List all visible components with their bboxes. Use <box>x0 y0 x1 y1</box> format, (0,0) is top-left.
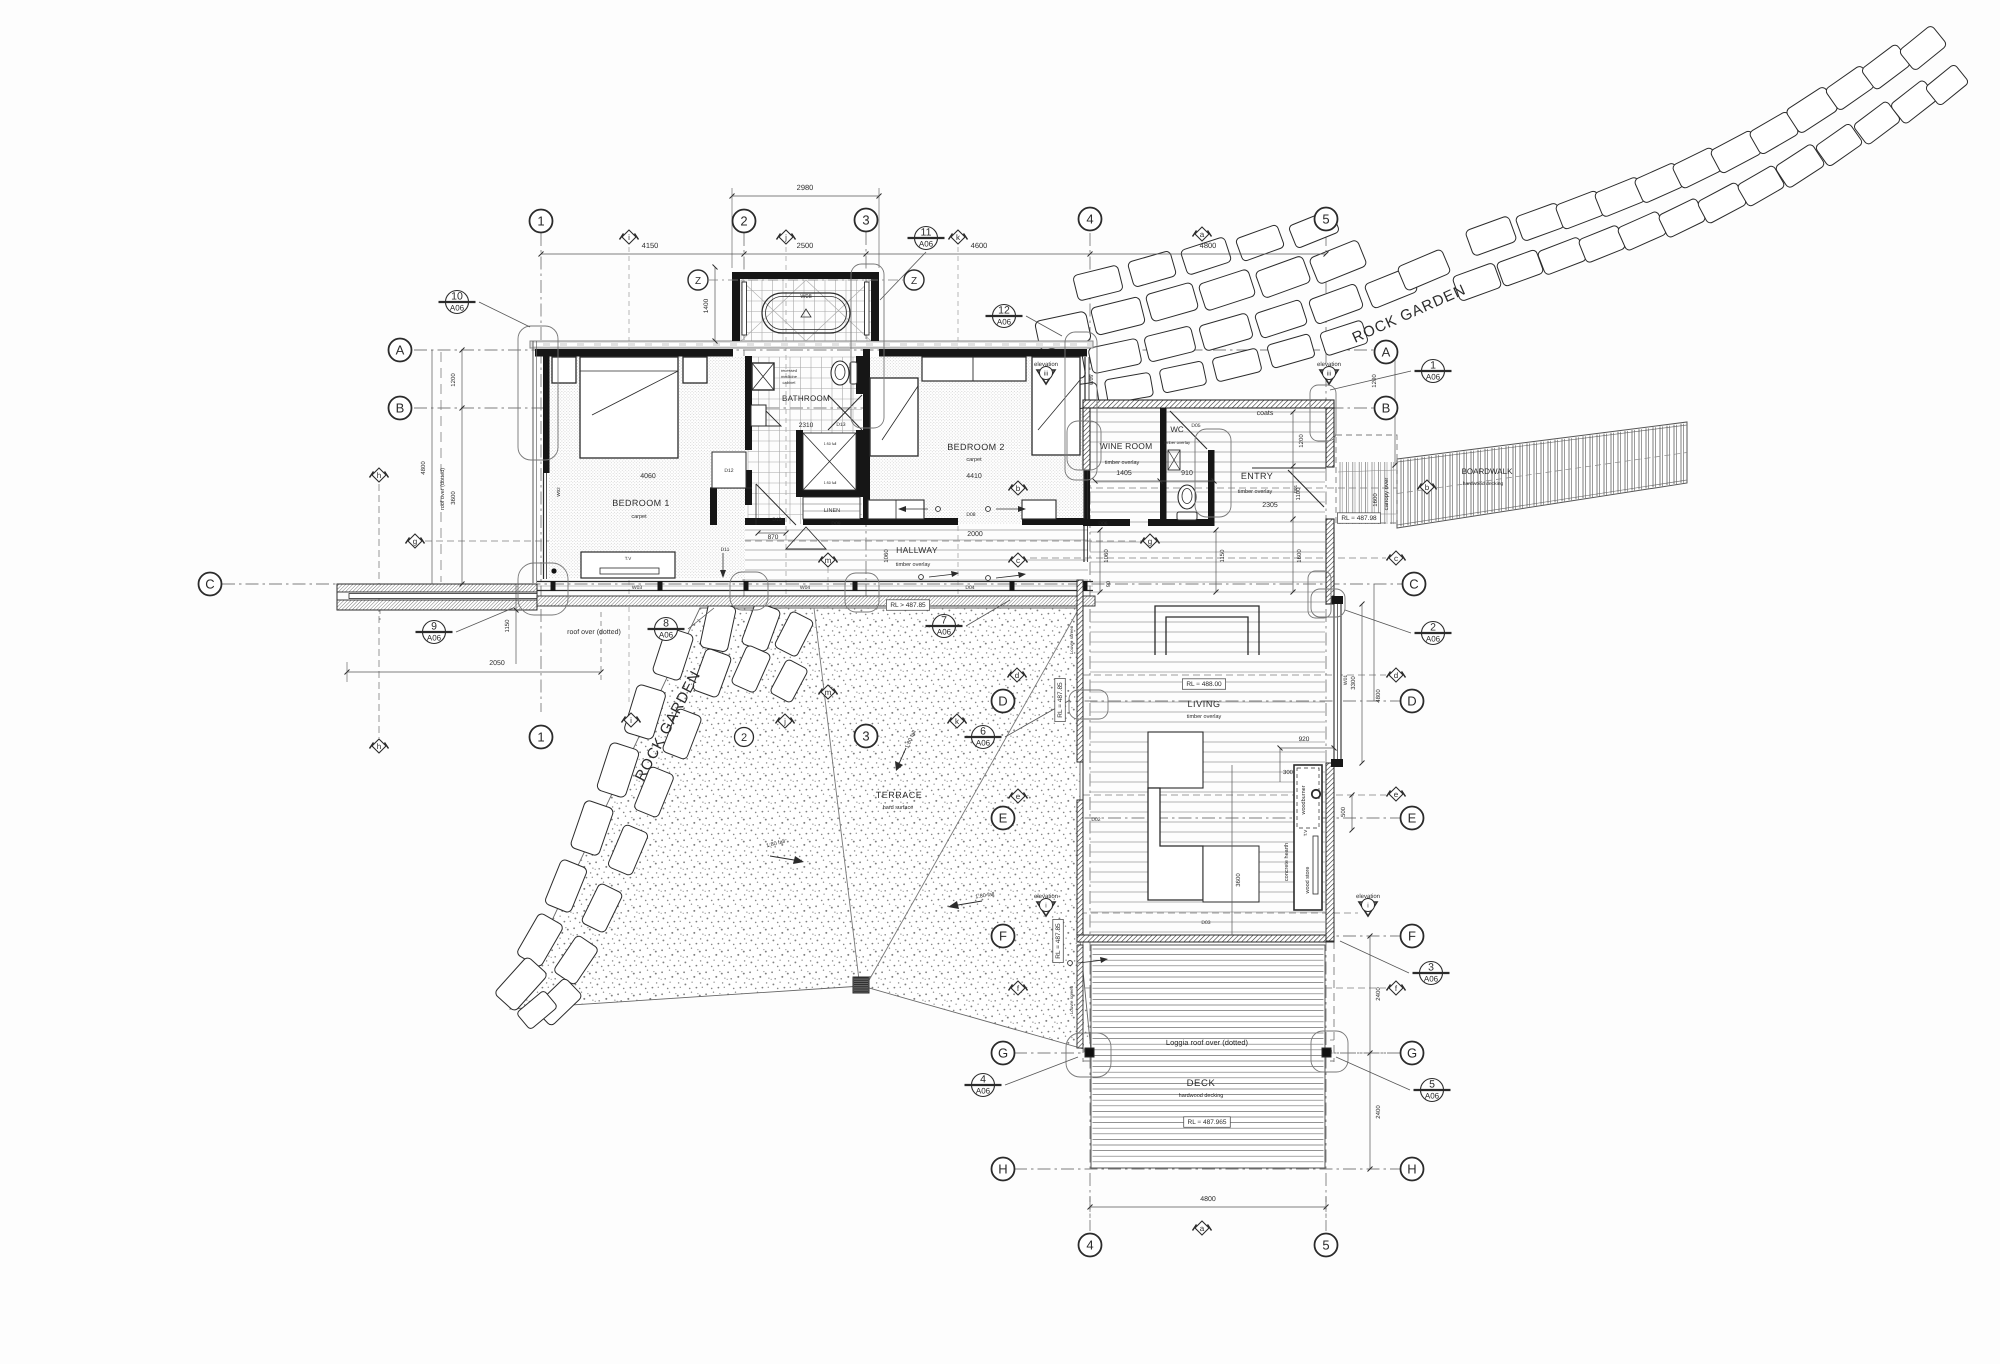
svg-text:iii: iii <box>1044 371 1048 378</box>
svg-text:12: 12 <box>998 305 1010 317</box>
svg-text:TERRACE: TERRACE <box>876 790 923 800</box>
svg-text:e: e <box>1394 790 1399 799</box>
svg-text:870: 870 <box>768 534 779 541</box>
svg-text:Louvre screen: Louvre screen <box>1069 625 1074 654</box>
svg-text:4: 4 <box>1086 212 1093 227</box>
svg-text:c: c <box>1016 556 1020 565</box>
svg-text:2050: 2050 <box>489 660 505 667</box>
svg-text:D11: D11 <box>721 547 730 553</box>
svg-text:D05: D05 <box>1191 423 1200 429</box>
svg-text:W08: W08 <box>800 294 811 300</box>
svg-text:d: d <box>1394 671 1398 680</box>
svg-text:RL = 487.85: RL = 487.85 <box>1055 923 1062 959</box>
svg-text:DECK: DECK <box>1187 1078 1216 1089</box>
svg-text:D09: D09 <box>831 521 840 527</box>
svg-text:1:50 fall: 1:50 fall <box>824 481 837 485</box>
svg-text:hard surface: hard surface <box>883 805 914 811</box>
svg-text:A06: A06 <box>937 628 952 637</box>
svg-text:concrete hearth: concrete hearth <box>1284 843 1290 881</box>
svg-text:a: a <box>1200 230 1205 239</box>
svg-text:8: 8 <box>663 618 669 630</box>
svg-text:A06: A06 <box>1426 635 1441 644</box>
svg-text:1060: 1060 <box>883 549 890 563</box>
svg-text:H: H <box>1407 1162 1416 1177</box>
svg-text:1100: 1100 <box>1295 487 1302 501</box>
svg-text:wood store: wood store <box>1305 867 1311 895</box>
svg-text:j: j <box>783 717 786 726</box>
svg-text:b: b <box>1016 484 1021 493</box>
svg-text:timber overlay: timber overlay <box>1187 714 1222 720</box>
svg-text:A06: A06 <box>1425 1092 1440 1101</box>
svg-text:3: 3 <box>1428 962 1434 974</box>
svg-text:BATHROOM: BATHROOM <box>782 394 830 403</box>
svg-text:A06: A06 <box>997 318 1012 327</box>
svg-text:RL = 487.98: RL = 487.98 <box>1341 515 1377 522</box>
svg-text:3: 3 <box>862 729 869 744</box>
svg-text:RL = 487.965: RL = 487.965 <box>1188 1119 1227 1126</box>
svg-text:2400: 2400 <box>1375 1105 1382 1119</box>
svg-text:E: E <box>1408 811 1417 826</box>
svg-text:W01: W01 <box>1343 675 1349 686</box>
svg-text:A06: A06 <box>1426 373 1441 382</box>
svg-text:h: h <box>377 742 381 751</box>
svg-text:910: 910 <box>1181 470 1193 477</box>
svg-text:h: h <box>377 471 381 480</box>
svg-text:j: j <box>784 233 787 242</box>
svg-text:roof over (dotted): roof over (dotted) <box>440 468 446 510</box>
svg-text:LINEN: LINEN <box>824 508 840 514</box>
svg-text:3: 3 <box>862 213 869 228</box>
svg-text:m: m <box>825 688 832 697</box>
svg-text:iii: iii <box>1327 371 1331 378</box>
svg-text:5: 5 <box>1322 1238 1329 1253</box>
svg-text:g: g <box>413 537 417 546</box>
svg-text:C: C <box>1409 577 1418 592</box>
svg-text:A06: A06 <box>976 739 991 748</box>
svg-text:W03: W03 <box>632 585 643 591</box>
svg-text:920: 920 <box>1299 736 1310 743</box>
svg-text:i: i <box>628 233 630 242</box>
svg-text:1150: 1150 <box>504 619 511 633</box>
svg-text:2305: 2305 <box>1262 502 1278 509</box>
svg-text:4150: 4150 <box>642 241 659 250</box>
svg-text:D12: D12 <box>724 468 733 474</box>
svg-text:WINE ROOM: WINE ROOM <box>1100 441 1153 451</box>
svg-text:carpet: carpet <box>966 457 982 463</box>
svg-text:300: 300 <box>1283 769 1294 776</box>
svg-text:2: 2 <box>1430 622 1436 634</box>
svg-text:B: B <box>1382 401 1391 416</box>
svg-text:G: G <box>998 1046 1008 1061</box>
svg-text:1060: 1060 <box>1103 549 1110 563</box>
svg-text:1200: 1200 <box>1298 434 1305 448</box>
svg-text:4: 4 <box>980 1074 986 1086</box>
svg-text:W05: W05 <box>1089 375 1095 386</box>
svg-text:timber overlay: timber overlay <box>1105 460 1140 466</box>
svg-text:1200: 1200 <box>450 373 457 387</box>
svg-text:recessed: recessed <box>781 368 797 373</box>
svg-text:3300: 3300 <box>1350 676 1357 690</box>
svg-text:1: 1 <box>537 730 544 745</box>
svg-text:7: 7 <box>941 615 947 627</box>
svg-text:1405: 1405 <box>1116 470 1132 477</box>
svg-text:1200: 1200 <box>1371 374 1378 388</box>
svg-text:D02: D02 <box>1091 817 1100 823</box>
svg-text:2000: 2000 <box>967 531 983 538</box>
svg-text:9: 9 <box>431 621 437 633</box>
svg-text:g: g <box>1148 537 1152 546</box>
svg-text:LIVING: LIVING <box>1187 699 1220 709</box>
svg-text:BEDROOM 2: BEDROOM 2 <box>947 442 1005 452</box>
svg-text:timber overlay: timber overlay <box>1164 440 1191 445</box>
svg-text:i: i <box>1045 903 1046 910</box>
svg-text:5: 5 <box>1429 1079 1435 1091</box>
svg-text:4800: 4800 <box>1375 689 1382 703</box>
svg-text:2: 2 <box>740 214 747 229</box>
svg-text:2500: 2500 <box>797 241 814 250</box>
svg-text:1: 1 <box>537 214 544 229</box>
svg-text:WC: WC <box>1170 425 1184 434</box>
svg-text:i: i <box>630 716 632 725</box>
svg-text:D08: D08 <box>966 512 975 518</box>
svg-text:2310: 2310 <box>799 422 814 429</box>
svg-text:A06: A06 <box>1424 975 1439 984</box>
svg-text:carpet: carpet <box>631 514 647 520</box>
svg-text:BEDROOM 1: BEDROOM 1 <box>612 498 670 508</box>
svg-text:500: 500 <box>1340 806 1347 817</box>
svg-text:T.V: T.V <box>625 556 632 561</box>
svg-text:D: D <box>1407 694 1416 709</box>
svg-text:A06: A06 <box>919 240 934 249</box>
svg-text:i: i <box>1367 903 1368 910</box>
svg-text:m: m <box>825 556 832 565</box>
svg-text:1600: 1600 <box>1372 493 1379 507</box>
svg-text:B: B <box>396 401 405 416</box>
svg-text:1600: 1600 <box>1296 549 1303 563</box>
svg-text:D: D <box>998 694 1007 709</box>
svg-text:F: F <box>1408 929 1416 944</box>
svg-text:Louvre screen: Louvre screen <box>1069 985 1074 1014</box>
svg-text:4600: 4600 <box>971 241 988 250</box>
svg-text:d: d <box>1015 671 1019 680</box>
svg-text:2980: 2980 <box>797 183 814 192</box>
svg-text:Loggia roof over (dotted): Loggia roof over (dotted) <box>1166 1038 1249 1047</box>
svg-text:90: 90 <box>1106 581 1112 587</box>
svg-text:4410: 4410 <box>966 473 982 480</box>
svg-text:5: 5 <box>1322 212 1329 227</box>
svg-text:E: E <box>999 811 1008 826</box>
svg-text:RL > 487.85: RL > 487.85 <box>890 602 926 609</box>
svg-text:A06: A06 <box>976 1087 991 1096</box>
svg-text:cabinet: cabinet <box>783 380 797 385</box>
svg-text:c: c <box>1394 554 1398 563</box>
svg-text:e: e <box>1016 792 1021 801</box>
svg-text:3600: 3600 <box>1235 873 1242 887</box>
svg-text:W04: W04 <box>800 585 811 591</box>
svg-text:D03: D03 <box>1201 920 1210 926</box>
svg-text:timber overlay: timber overlay <box>896 562 931 568</box>
svg-text:A06: A06 <box>659 631 674 640</box>
svg-text:BOARDWALK: BOARDWALK <box>1462 467 1513 476</box>
svg-text:D13: D13 <box>836 422 845 428</box>
svg-text:RL = 488.00: RL = 488.00 <box>1186 681 1222 688</box>
svg-text:6: 6 <box>980 726 986 738</box>
svg-text:H: H <box>998 1162 1007 1177</box>
svg-text:HALLWAY: HALLWAY <box>896 545 938 555</box>
svg-text:b: b <box>1425 483 1430 492</box>
svg-text:hardwood decking: hardwood decking <box>1463 481 1504 487</box>
svg-text:a: a <box>1200 1224 1205 1233</box>
svg-text:D04: D04 <box>965 585 974 591</box>
svg-text:A: A <box>1382 345 1391 360</box>
svg-text:hardwood decking: hardwood decking <box>1179 1093 1224 1099</box>
svg-text:W02: W02 <box>556 487 561 497</box>
svg-text:roof over (dotted): roof over (dotted) <box>567 628 621 636</box>
svg-text:D10: D10 <box>772 517 781 523</box>
svg-text:1150: 1150 <box>1219 549 1226 563</box>
svg-text:1: 1 <box>1430 360 1436 372</box>
svg-text:2400: 2400 <box>1375 987 1382 1001</box>
svg-text:A: A <box>396 343 405 358</box>
svg-text:Z: Z <box>695 276 701 287</box>
svg-text:C: C <box>205 577 214 592</box>
svg-text:A06: A06 <box>450 304 465 313</box>
svg-text:medicine: medicine <box>781 374 798 379</box>
svg-text:Z: Z <box>911 276 917 287</box>
svg-text:F: F <box>999 929 1007 944</box>
svg-text:4800: 4800 <box>1200 1196 1216 1203</box>
svg-text:4060: 4060 <box>640 473 656 480</box>
svg-text:ENTRY: ENTRY <box>1241 471 1273 481</box>
svg-text:4800: 4800 <box>1200 241 1217 250</box>
svg-text:timber overlay: timber overlay <box>1238 489 1273 495</box>
svg-text:RL = 487.85: RL = 487.85 <box>1057 682 1064 718</box>
svg-text:2: 2 <box>741 732 747 744</box>
svg-text:4: 4 <box>1086 1238 1093 1253</box>
svg-text:D06: D06 <box>1098 521 1107 527</box>
svg-text:1:50 fall: 1:50 fall <box>824 442 837 446</box>
svg-text:10: 10 <box>451 291 463 303</box>
svg-text:3600: 3600 <box>450 491 457 505</box>
svg-text:canopy over: canopy over <box>1384 478 1390 511</box>
svg-text:A06: A06 <box>427 634 442 643</box>
svg-text:woodburner: woodburner <box>1301 785 1307 815</box>
svg-text:1400: 1400 <box>703 298 710 313</box>
svg-text:4800: 4800 <box>420 461 427 475</box>
svg-text:11: 11 <box>921 227 932 239</box>
svg-text:G: G <box>1407 1046 1417 1061</box>
svg-text:T.V: T.V <box>1303 830 1308 837</box>
svg-text:coats: coats <box>1257 410 1274 417</box>
